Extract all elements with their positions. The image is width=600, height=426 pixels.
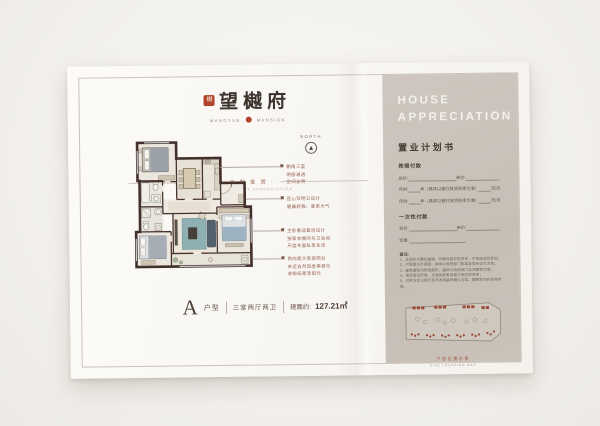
blank-field bbox=[479, 198, 491, 204]
bullet-icon bbox=[280, 164, 283, 167]
blank-field bbox=[466, 225, 500, 231]
field-label: 月供: bbox=[399, 199, 409, 205]
field-label: 单价: bbox=[456, 175, 466, 181]
form-row: 优惠: bbox=[399, 236, 504, 243]
blank-field bbox=[479, 186, 491, 192]
bullet-icon bbox=[281, 196, 284, 199]
site-plan-caption-en: SITE LOCATION MAP bbox=[401, 363, 506, 368]
panel-title: HOUSE APPRECIATION bbox=[397, 92, 502, 127]
callout-text: 尺度丰盈私享生活 bbox=[287, 242, 365, 251]
site-plan bbox=[400, 296, 506, 353]
unit-rooms: 三室两厅两卫 bbox=[233, 302, 277, 312]
panel-title-line1: HOUSE bbox=[397, 92, 502, 110]
north-indicator: NORTH bbox=[294, 134, 328, 154]
floor-plan-drawing bbox=[114, 134, 296, 271]
field-label: 元/月 bbox=[491, 186, 501, 192]
callout-text: 健康舒雅、尊贵大气 bbox=[287, 202, 365, 211]
house-appreciation-panel: HOUSE APPRECIATION 置业计划书 按揭付款 总价: 单价: 月供… bbox=[382, 73, 521, 363]
label-divider bbox=[283, 301, 284, 313]
field-label: 单价: bbox=[457, 225, 467, 231]
blank-field bbox=[409, 225, 457, 232]
brand-sub-right: MANSION bbox=[257, 117, 286, 122]
callout-2: 匠心双明卫设计 健康舒雅、尊贵大气 bbox=[287, 194, 365, 210]
field-label: 年（具体以银行放贷利率为准） bbox=[420, 186, 479, 193]
field-label: 元/月 bbox=[491, 197, 501, 203]
form-row: 月供: 年（具体以银行放贷利率为准） 元/月 bbox=[399, 197, 504, 204]
form-row: 总价: 单价: bbox=[399, 225, 504, 232]
compass-icon bbox=[305, 142, 317, 154]
callout-3: 主卧奢适套房设计 独享衣帽间与卫浴间 尺度丰盈私享生活 bbox=[287, 226, 365, 250]
callout-text: 空间全明 bbox=[286, 178, 364, 187]
unit-area-value: 127.21㎡ bbox=[315, 300, 348, 311]
north-label: NORTH bbox=[294, 134, 328, 139]
brand-seal-icon: 樾 bbox=[204, 95, 215, 106]
field-label: 总价: bbox=[398, 176, 408, 182]
blank-field bbox=[408, 175, 456, 182]
callout-text: 收眼底尊享阳光 bbox=[288, 270, 366, 279]
form-row: 总价: 单价: bbox=[398, 174, 503, 181]
form-row: 月供: 年（具体以银行放贷利率为准） 元/月 bbox=[399, 186, 504, 193]
unit-word: 户型 bbox=[204, 302, 220, 312]
notes-section: 备注: 1、本资料为要约邀请，所载内容仅供参考，不构成合同承诺； 2、户型图为示… bbox=[399, 250, 504, 290]
bullet-icon bbox=[281, 256, 284, 259]
blank-field bbox=[408, 198, 420, 204]
field-label: 优惠: bbox=[399, 238, 409, 244]
bullet-icon bbox=[281, 228, 284, 231]
callout-4: 南向超大观景阳台 亲近自然四季美景尽 收眼底尊享阳光 bbox=[287, 254, 365, 278]
brand-logo: 樾 望樾府 WANGYUE MANSION bbox=[107, 85, 387, 124]
site-plan-caption: 户型位置示意 bbox=[401, 356, 506, 363]
label-divider bbox=[226, 301, 227, 313]
blank-field bbox=[408, 187, 420, 193]
field-label: 月供: bbox=[399, 187, 409, 193]
site-plan-drawing bbox=[400, 296, 507, 348]
unit-type-label: A 户型 三室两厅两卫 建面约: 127.21㎡ bbox=[145, 295, 385, 319]
blank-field bbox=[409, 237, 465, 244]
field-label: 年（具体以银行放贷利率为准） bbox=[420, 198, 479, 205]
callout-1: 朝南三室 明厨通透 空间全明 bbox=[286, 162, 364, 186]
panel-title-line2: APPRECIATION bbox=[398, 108, 503, 126]
brand-name: 望樾府 bbox=[219, 86, 291, 114]
photo-backdrop: 樾 望樾府 WANGYUE MANSION · 户 型 鉴 赏 · REFINE… bbox=[0, 0, 600, 426]
floor-plan bbox=[114, 134, 296, 271]
brand-sub-left: WANGYUE bbox=[210, 117, 241, 122]
unit-area-label: 建面约: bbox=[290, 302, 311, 311]
blank-field bbox=[466, 174, 500, 180]
brand-row: 樾 望樾府 bbox=[107, 85, 387, 115]
note-item: 5、付款方式以银行及开发商最终确认为准，解释权归开发商所有。 bbox=[400, 278, 505, 290]
compass-needle-icon bbox=[309, 146, 313, 150]
unit-letter: A bbox=[182, 297, 197, 318]
panel-subtitle: 置业计划书 bbox=[398, 140, 503, 154]
brand-round-seal-icon bbox=[246, 117, 252, 123]
brochure-sheet: 樾 望樾府 WANGYUE MANSION · 户 型 鉴 赏 · REFINE… bbox=[67, 61, 533, 379]
mortgage-heading: 按揭付款 bbox=[398, 162, 503, 170]
onetime-heading: 一次性付款 bbox=[399, 212, 504, 220]
field-label: 总价: bbox=[399, 226, 409, 232]
